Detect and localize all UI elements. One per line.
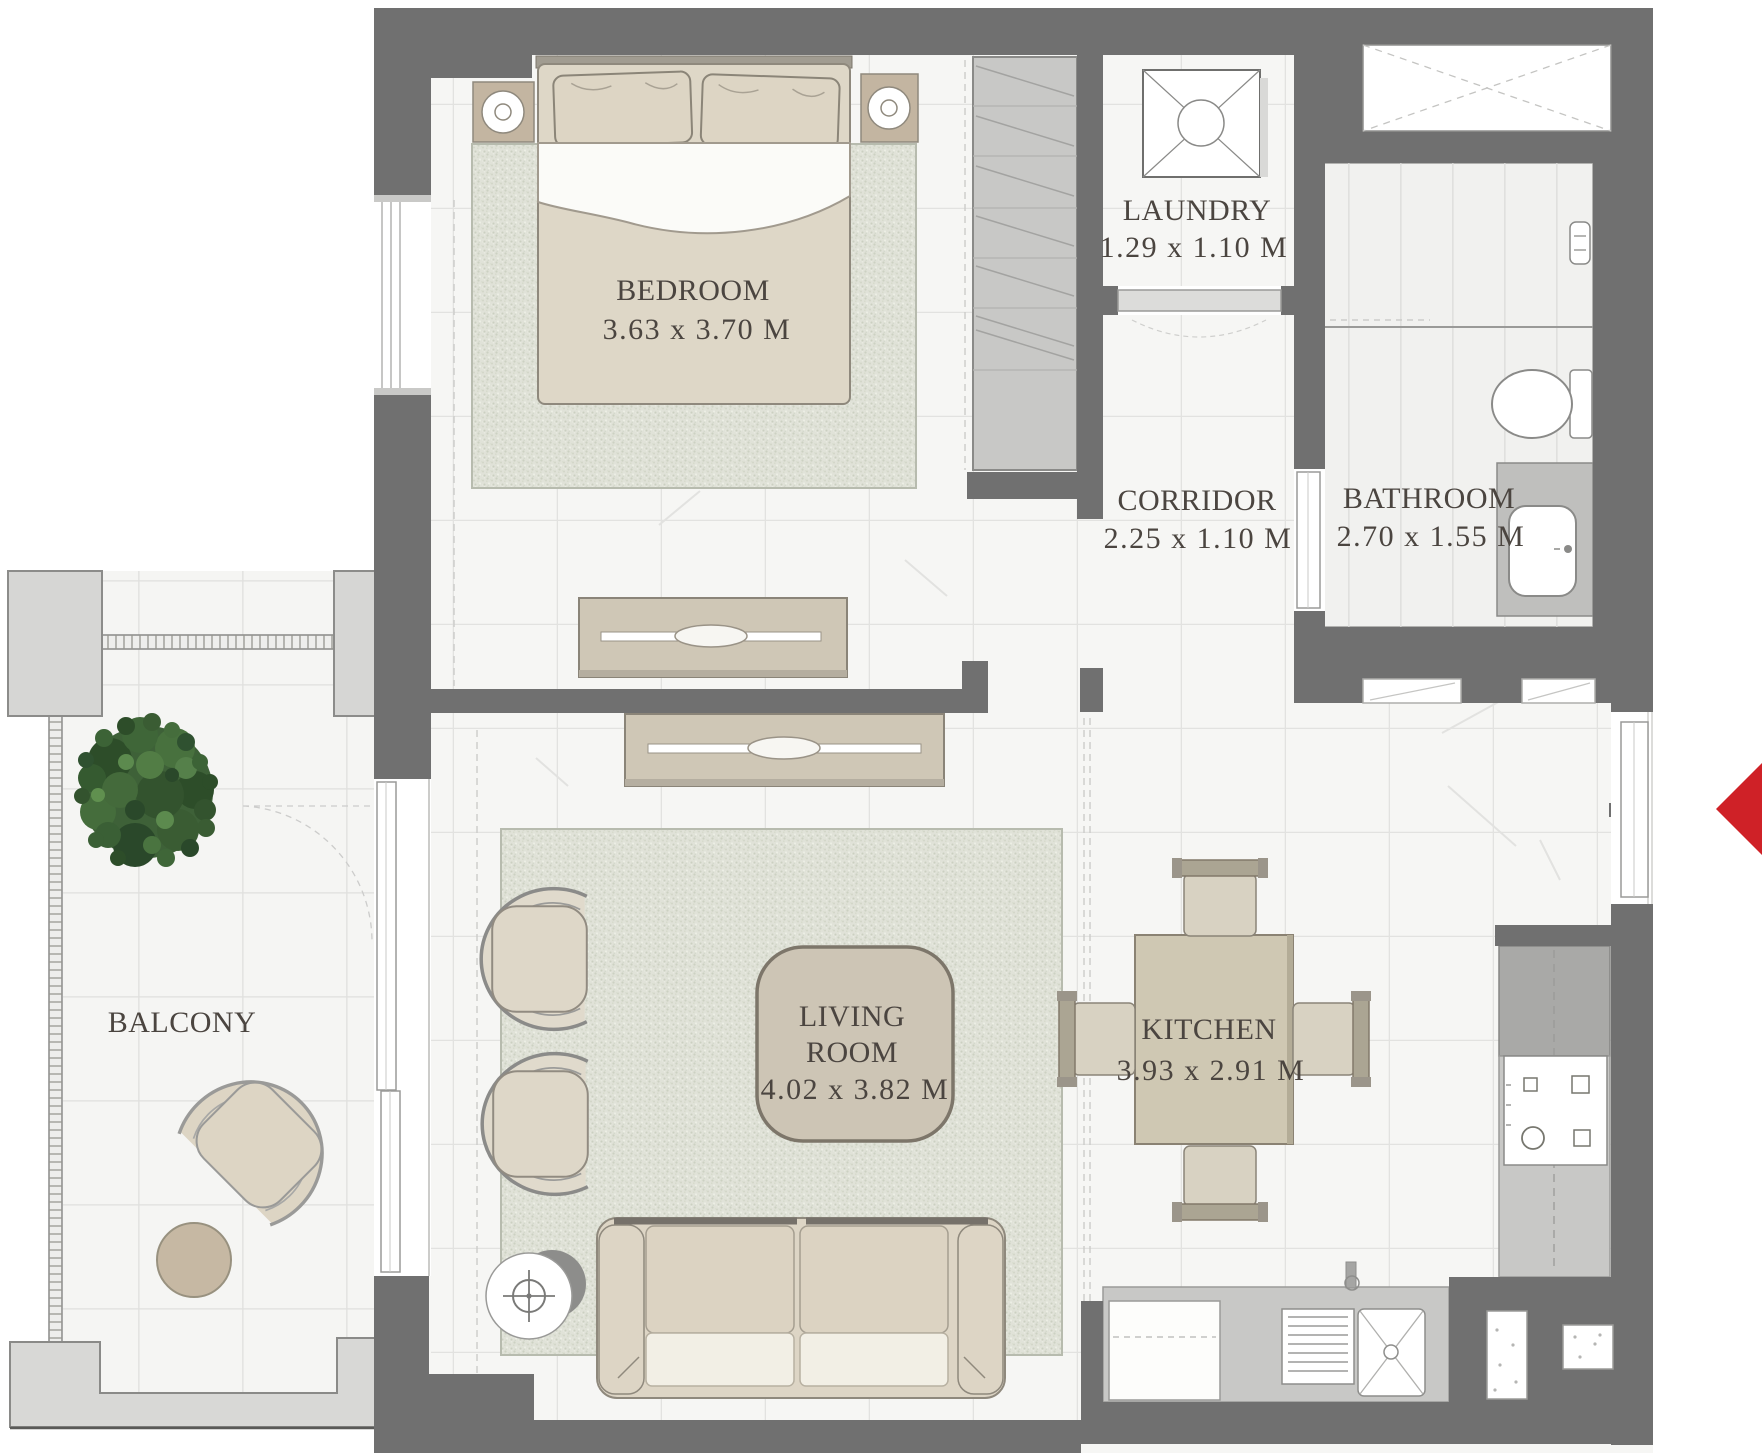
svg-text:1.29 x 1.10 M: 1.29 x 1.10 M (1100, 231, 1289, 264)
svg-text:KITCHEN: KITCHEN (1141, 1013, 1276, 1046)
svg-text:BEDROOM: BEDROOM (616, 274, 770, 307)
svg-text:BATHROOM: BATHROOM (1343, 482, 1515, 515)
svg-text:3.93 x 2.91 M: 3.93 x 2.91 M (1117, 1054, 1306, 1087)
svg-text:4.02 x 3.82 M: 4.02 x 3.82 M (761, 1073, 950, 1106)
svg-text:LIVING: LIVING (799, 1000, 905, 1033)
svg-text:2.25 x 1.10 M: 2.25 x 1.10 M (1104, 522, 1293, 555)
svg-text:CORRIDOR: CORRIDOR (1117, 484, 1276, 517)
svg-text:BALCONY: BALCONY (108, 1006, 257, 1039)
svg-text:2.70 x 1.55 M: 2.70 x 1.55 M (1337, 520, 1526, 553)
svg-text:3.63 x 3.70 M: 3.63 x 3.70 M (603, 313, 792, 346)
svg-text:LAUNDRY: LAUNDRY (1123, 194, 1272, 227)
svg-text:ROOM: ROOM (806, 1036, 898, 1069)
